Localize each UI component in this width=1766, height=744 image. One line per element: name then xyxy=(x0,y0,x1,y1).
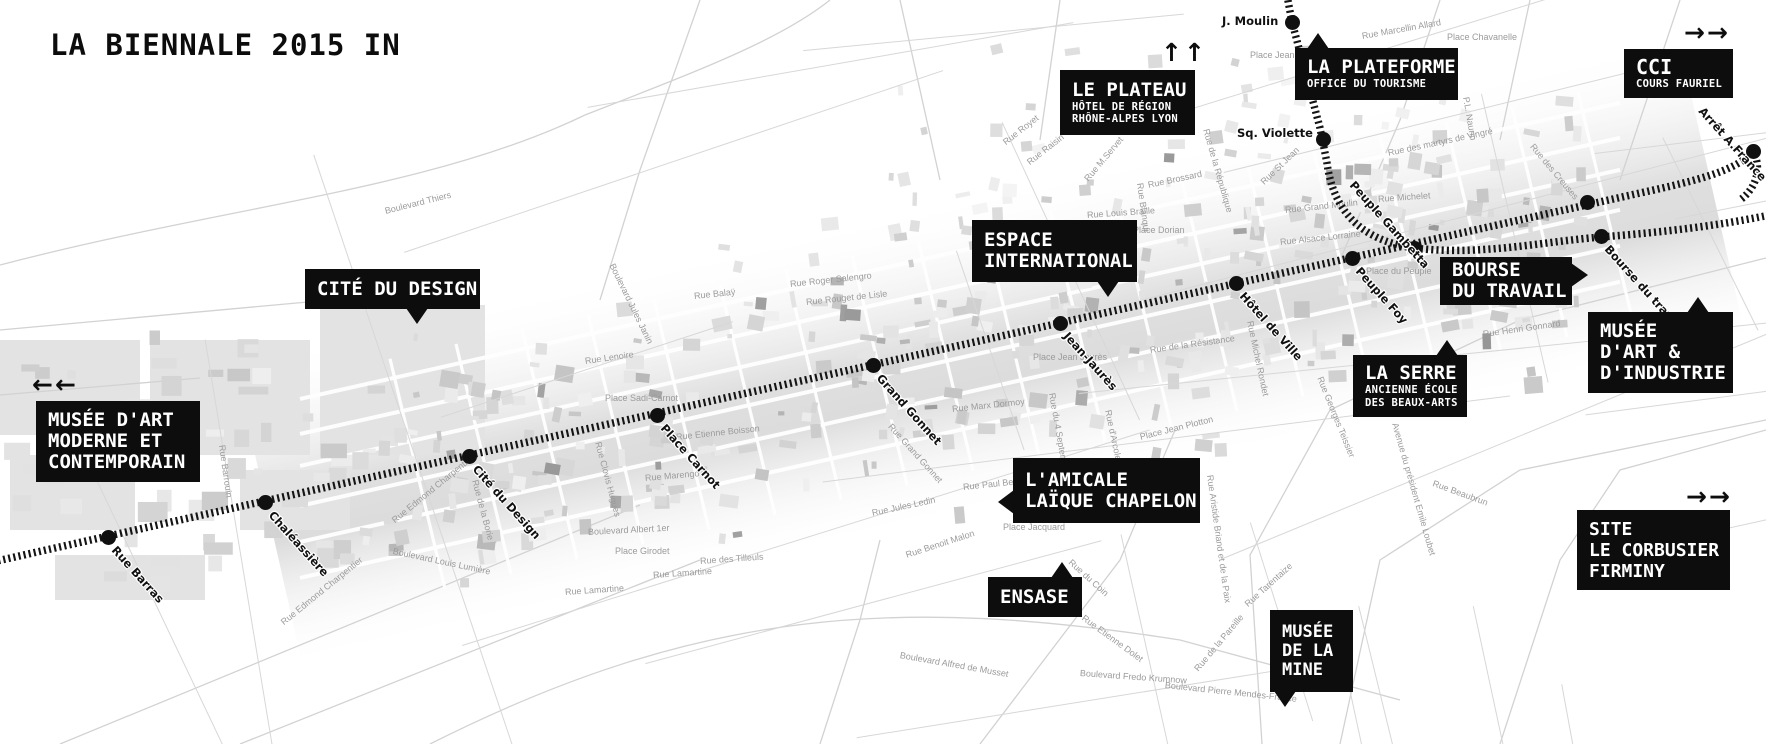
tram-stop-dot xyxy=(650,408,665,423)
venue-title-line: MODERNE ET xyxy=(48,431,200,452)
venue-box-bourse-du-travail[interactable]: BOURSEDU TRAVAIL xyxy=(1440,257,1572,305)
offmap-direction-arrows-icon: ←← xyxy=(32,370,78,399)
tram-stop-dot xyxy=(1580,195,1595,210)
venue-title-line: LE PLATEAU xyxy=(1072,80,1195,101)
venue-box-musee-art-moderne[interactable]: MUSÉE D'ARTMODERNE ETCONTEMPORAIN xyxy=(36,401,200,482)
venue-title-line: CONTEMPORAIN xyxy=(48,452,200,473)
venue-subtitle-line: ANCIENNE ÉCOLE xyxy=(1365,384,1467,397)
venue-title-line: ESPACE xyxy=(984,230,1137,251)
venue-box-cite-du-design[interactable]: CITÉ DU DESIGN xyxy=(305,269,480,309)
venue-box-espace-international[interactable]: ESPACEINTERNATIONAL xyxy=(972,220,1137,282)
page-title: LA BIENNALE 2015 IN xyxy=(50,28,401,62)
venue-title-line: MINE xyxy=(1282,661,1353,680)
venue-title-line: CCI xyxy=(1636,57,1733,78)
venue-pointer-up-icon xyxy=(1051,562,1073,578)
tram-stop-dot xyxy=(1053,316,1068,331)
biennale-map-canvas[interactable]: Boulevard ThiersRue BergsonRue BarrouinR… xyxy=(0,0,1766,744)
venue-subtitle-line: HÔTEL DE RÉGION xyxy=(1072,101,1195,114)
venue-box-ensase[interactable]: ENSASE xyxy=(988,577,1082,617)
venue-box-musee-art-industrie[interactable]: MUSÉED'ART &D'INDUSTRIE xyxy=(1588,312,1733,393)
venue-box-la-plateforme[interactable]: LA PLATEFORMEOFFICE DU TOURISME xyxy=(1295,48,1458,100)
tram-stop-dot xyxy=(101,530,116,545)
venue-title-line: INTERNATIONAL xyxy=(984,251,1137,272)
tram-stop-dot xyxy=(1316,132,1331,147)
venue-pointer-right-icon xyxy=(1571,263,1588,287)
venue-title-line: BOURSE xyxy=(1452,260,1572,281)
venue-title-line: LA SERRE xyxy=(1365,363,1467,384)
venue-title-line: LA PLATEFORME xyxy=(1307,57,1458,78)
venue-title-line: D'INDUSTRIE xyxy=(1600,363,1733,384)
offmap-direction-arrows-icon: →→ xyxy=(1686,482,1732,511)
tram-stop-label: J. Moulin xyxy=(1222,14,1278,28)
tram-stop-dot xyxy=(866,358,881,373)
venue-pointer-down-icon xyxy=(1274,691,1296,707)
tram-stop-dot xyxy=(1285,15,1300,30)
tram-stop-dot xyxy=(1229,276,1244,291)
venue-subtitle-line: COURS FAURIEL xyxy=(1636,78,1733,91)
venue-title-line: DU TRAVAIL xyxy=(1452,281,1572,302)
venue-pointer-down-icon xyxy=(406,308,428,324)
venue-box-musee-de-la-mine[interactable]: MUSÉEDE LAMINE xyxy=(1270,610,1353,692)
venue-pointer-left-icon xyxy=(998,490,1014,514)
venue-title-line: ENSASE xyxy=(1000,587,1082,608)
tram-stop-dot xyxy=(1594,229,1609,244)
venue-title-line: DE LA xyxy=(1282,642,1353,661)
venue-box-site-le-corbusier[interactable]: SITELE CORBUSIERFIRMINY xyxy=(1577,510,1730,590)
venue-title-line: MUSÉE D'ART xyxy=(48,410,200,431)
venue-title-line: L'AMICALE xyxy=(1025,470,1200,491)
venue-subtitle-line: RHÔNE-ALPES LYON xyxy=(1072,113,1195,126)
venue-box-le-plateau[interactable]: LE PLATEAUHÔTEL DE RÉGIONRHÔNE-ALPES LYO… xyxy=(1060,70,1195,135)
venue-box-la-serre[interactable]: LA SERREANCIENNE ÉCOLEDES BEAUX-ARTS xyxy=(1353,355,1467,417)
venue-title-line: MUSÉE xyxy=(1282,623,1353,642)
venue-pointer-up-icon xyxy=(1307,33,1329,49)
venue-pointer-up-icon xyxy=(1436,340,1458,356)
venue-subtitle-line: DES BEAUX-ARTS xyxy=(1365,397,1467,410)
venue-title-line: CITÉ DU DESIGN xyxy=(317,279,480,300)
venue-title-line: SITE xyxy=(1589,519,1730,540)
venue-title-line: LAÏQUE CHAPELON xyxy=(1025,491,1200,512)
tram-stop-dot xyxy=(1345,251,1360,266)
venue-box-cci[interactable]: CCICOURS FAURIEL xyxy=(1624,49,1733,98)
venue-title-line: D'ART & xyxy=(1600,342,1733,363)
tram-stop-label: Sq. Violette xyxy=(1237,126,1313,140)
offmap-direction-arrows-icon: →→ xyxy=(1684,18,1730,47)
venue-pointer-up-icon xyxy=(1687,297,1709,313)
venue-subtitle-line: OFFICE DU TOURISME xyxy=(1307,78,1458,91)
venue-title-line: LE CORBUSIER xyxy=(1589,540,1730,561)
venue-box-amicale-laique-chapelon[interactable]: L'AMICALELAÏQUE CHAPELON xyxy=(1013,458,1200,523)
venue-title-line: MUSÉE xyxy=(1600,321,1733,342)
venue-title-line: FIRMINY xyxy=(1589,561,1730,582)
tram-stop-dot xyxy=(258,495,273,510)
tram-stop-dot xyxy=(462,449,477,464)
offmap-direction-arrows-icon: ↑↑ xyxy=(1161,38,1207,67)
venue-pointer-down-icon xyxy=(1097,281,1119,297)
